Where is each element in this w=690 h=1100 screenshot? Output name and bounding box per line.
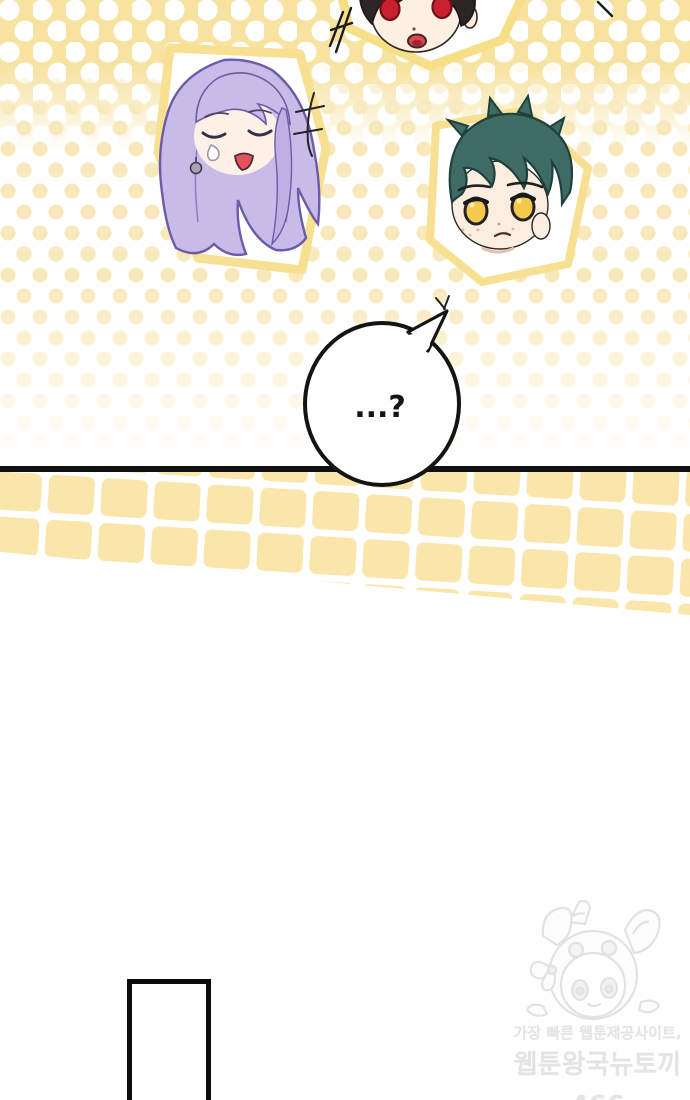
watermark: 가장 빠른 웹툰제공사이트, 웹툰왕국뉴토끼466 HTTPS://NEWTOK… [505, 900, 690, 1100]
halftone-background [0, 0, 690, 470]
tile-band-shape [0, 472, 690, 615]
watermark-site-tagline: 가장 빠른 웹툰제공사이트, [505, 1022, 690, 1045]
watermark-site-name: 웹툰왕국뉴토끼466 [505, 1045, 690, 1100]
door-frame-rectangle [127, 979, 211, 1100]
polka-dots-pale-band [0, 55, 690, 470]
tile-pattern-band [0, 472, 690, 620]
comic-page: ...? [0, 0, 690, 1100]
watermark-mascot-icon [513, 900, 683, 1022]
